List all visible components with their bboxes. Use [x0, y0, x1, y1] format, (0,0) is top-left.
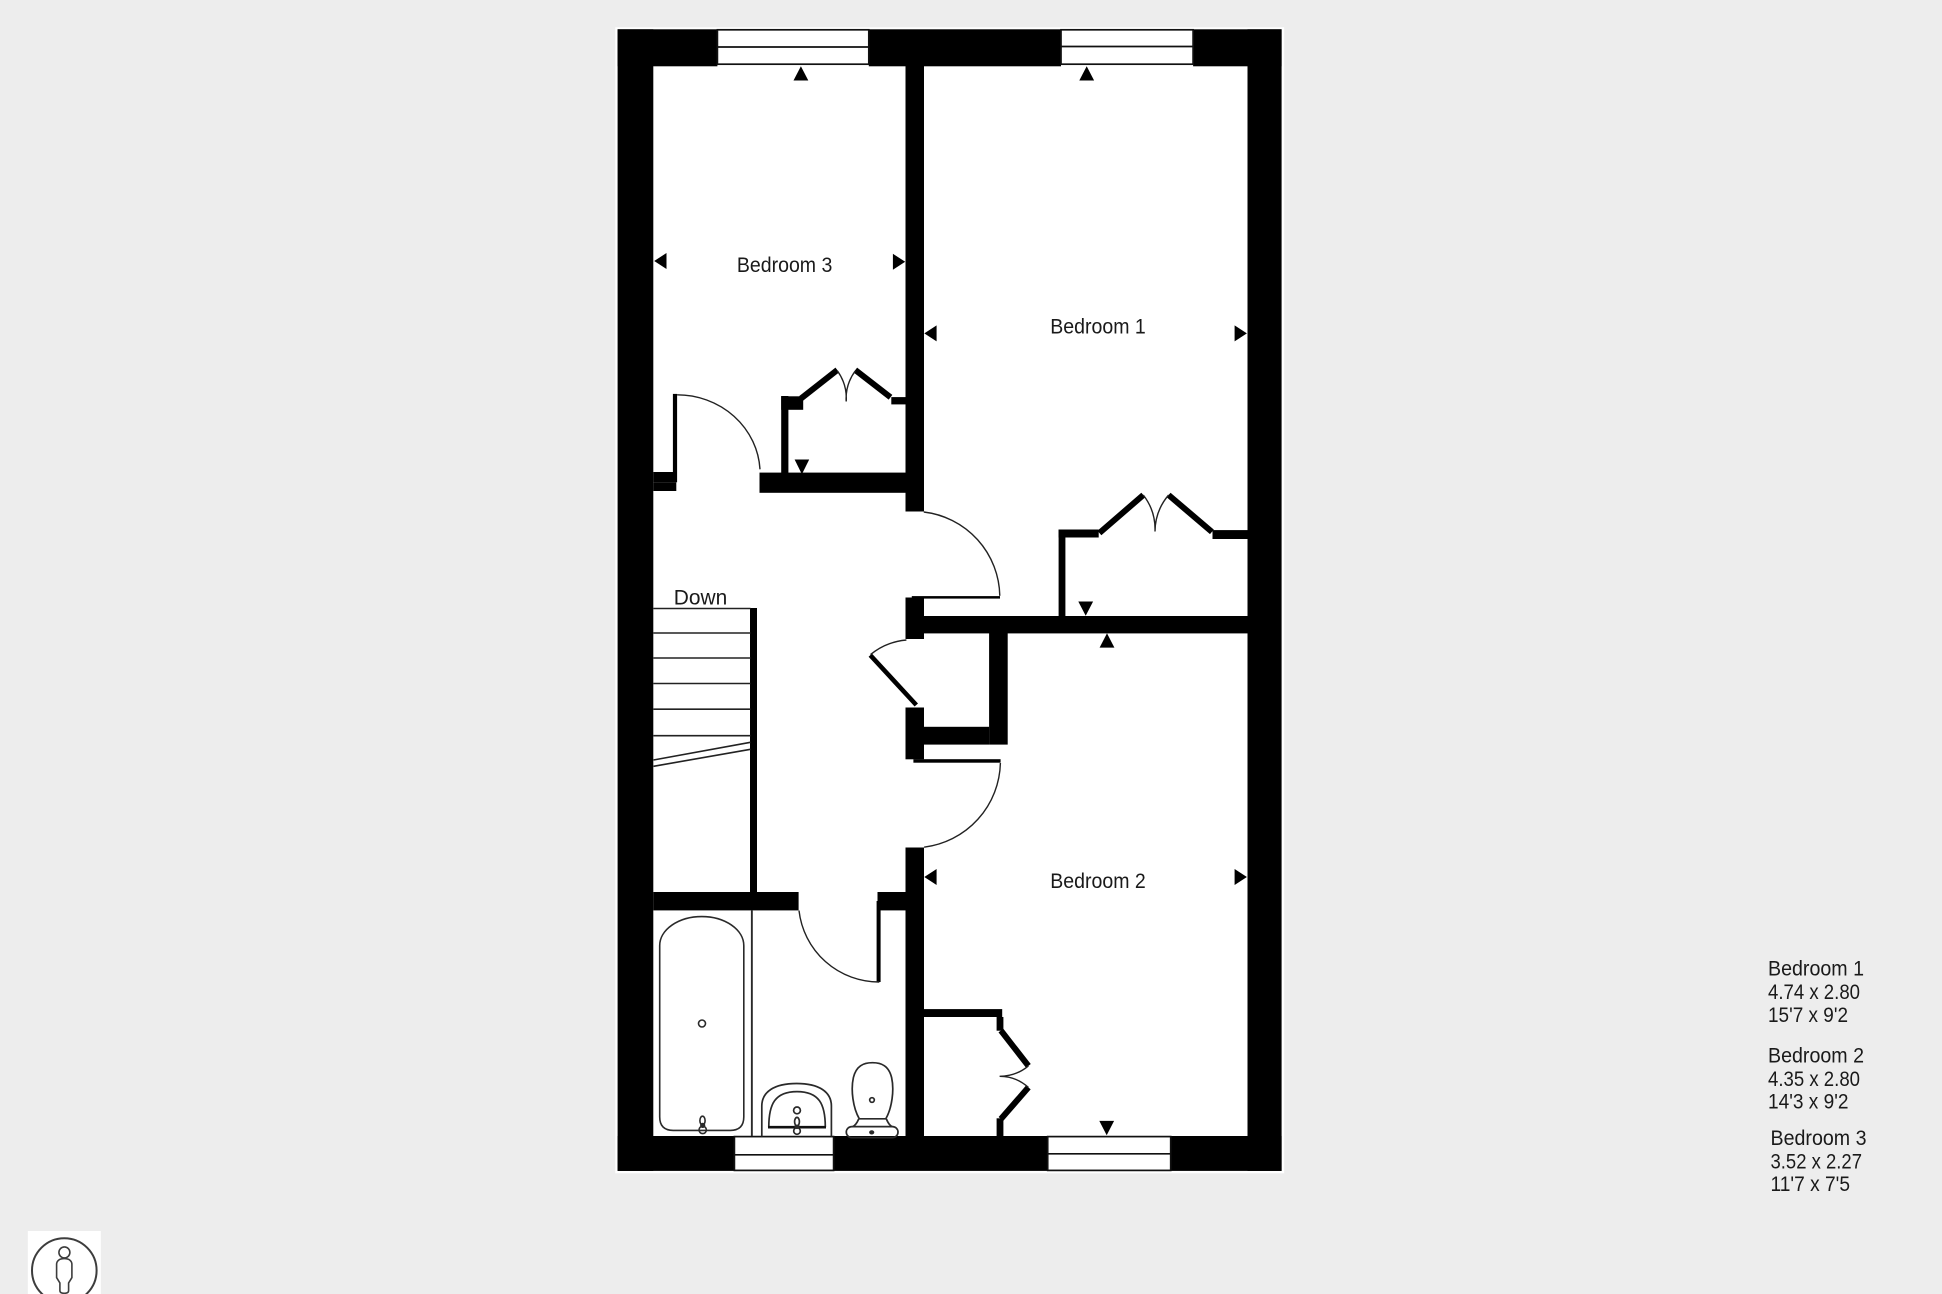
svg-text:11'7 x 7'5: 11'7 x 7'5: [1771, 1172, 1851, 1196]
svg-text:Bedroom 1: Bedroom 1: [1050, 315, 1146, 339]
svg-text:Bedroom 2: Bedroom 2: [1768, 1044, 1864, 1068]
svg-text:4.74 x 2.80: 4.74 x 2.80: [1768, 980, 1860, 1004]
svg-text:15'7 x 9'2: 15'7 x 9'2: [1768, 1003, 1848, 1027]
svg-text:4.35 x 2.80: 4.35 x 2.80: [1768, 1067, 1860, 1091]
svg-text:Bedroom 1: Bedroom 1: [1768, 957, 1864, 981]
svg-text:Bedroom 3: Bedroom 3: [737, 253, 833, 277]
svg-text:Down: Down: [674, 587, 728, 610]
svg-text:14'3 x 9'2: 14'3 x 9'2: [1768, 1089, 1849, 1113]
svg-text:3.52 x 2.27: 3.52 x 2.27: [1771, 1150, 1863, 1174]
svg-text:Bedroom 2: Bedroom 2: [1050, 869, 1146, 893]
svg-text:Bedroom 3: Bedroom 3: [1771, 1126, 1867, 1150]
